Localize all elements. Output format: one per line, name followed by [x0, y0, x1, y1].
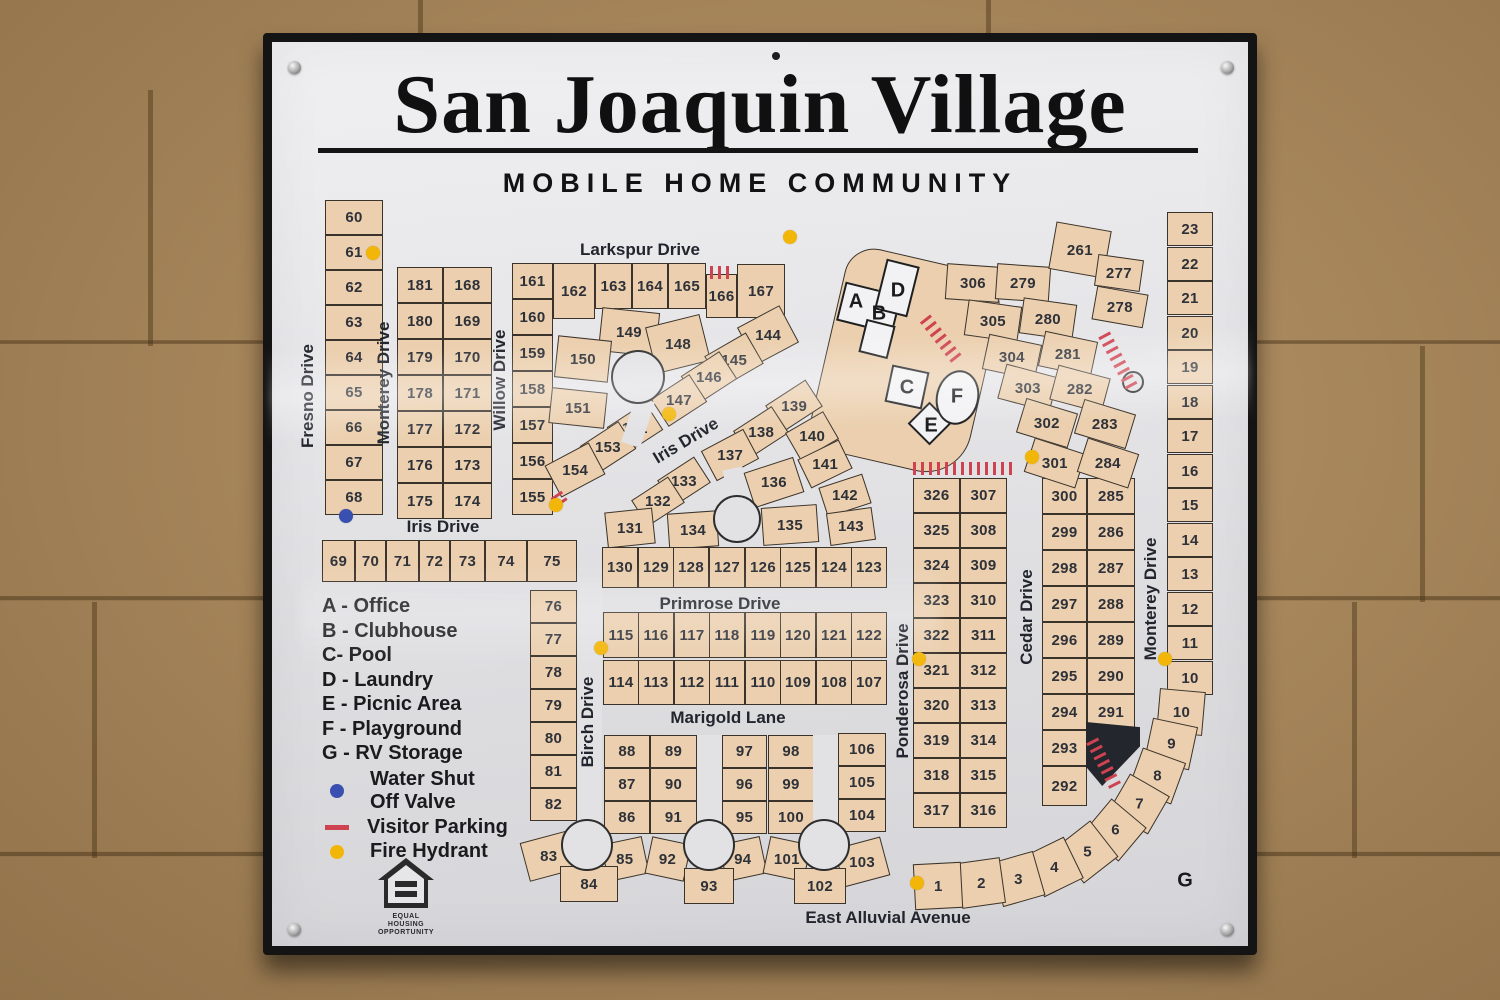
lot-278: 278 [1091, 286, 1148, 329]
lot-115: 115 [603, 612, 639, 658]
lot-155: 155 [512, 479, 553, 515]
lot-296: 296 [1042, 622, 1087, 658]
lot-306: 306 [945, 263, 1001, 303]
lot-number: 284 [1095, 455, 1121, 472]
lot-number: 110 [750, 674, 775, 691]
lot-number: 286 [1098, 524, 1124, 541]
equal-housing-icon [378, 858, 434, 908]
visitor-parking-icon [325, 825, 349, 830]
lot-number: 86 [618, 809, 635, 826]
lot-number: 326 [924, 487, 950, 504]
lot-108: 108 [816, 660, 852, 705]
lot-number: 287 [1098, 560, 1124, 577]
legend-entry-g: G - RV Storage [322, 741, 572, 766]
lot-number: 131 [617, 520, 643, 537]
lot-130: 130 [602, 547, 638, 588]
lot-number: 156 [520, 453, 546, 470]
lot-129: 129 [638, 547, 674, 588]
lot-323: 323 [913, 583, 960, 618]
legend-entry-e: E - Picnic Area [322, 692, 572, 717]
lot-number: 119 [750, 627, 775, 644]
lot-311: 311 [960, 618, 1007, 653]
legend-entry-d: D - Laundry [322, 668, 572, 693]
lot-number: 13 [1181, 566, 1198, 583]
lot-number: 136 [761, 474, 787, 491]
lot-number: 158 [520, 381, 546, 398]
lot-number: 150 [570, 351, 596, 368]
lot-84: 84 [560, 866, 618, 902]
lot-number: 1 [934, 878, 943, 895]
lot-number: 67 [345, 454, 362, 471]
lot-number: 157 [520, 417, 546, 434]
lot-287: 287 [1087, 550, 1135, 586]
lot-number: 316 [971, 802, 997, 819]
lot-164: 164 [632, 263, 668, 309]
lot-number: 91 [665, 809, 682, 826]
lot-number: 180 [407, 313, 433, 330]
lot-317: 317 [913, 793, 960, 828]
visitor-parking-tick [1101, 766, 1114, 775]
lot-number: 315 [971, 767, 997, 784]
lot-172: 172 [443, 411, 492, 447]
visitor-parking-tick [1110, 353, 1123, 362]
site-map: 6061626364656667681811801791781771761751… [0, 0, 1500, 1000]
lot-171: 171 [443, 375, 492, 411]
lot-123: 123 [851, 547, 887, 588]
lot-number: 319 [924, 732, 950, 749]
lot-number: 311 [971, 627, 996, 644]
lot-number: 299 [1052, 524, 1078, 541]
lot-number: 322 [924, 627, 950, 644]
lot-number: 15 [1181, 497, 1198, 514]
wall-background: San Joaquin Village MOBILE HOME COMMUNIT… [0, 0, 1500, 1000]
lot-15: 15 [1167, 488, 1213, 522]
street-label-birch-drive: Birch Drive [578, 677, 598, 768]
lot-11: 11 [1167, 626, 1213, 660]
lot-number: 170 [455, 349, 481, 366]
street-label-iris-drive: Iris Drive [407, 517, 480, 537]
visitor-parking-tick [945, 462, 948, 475]
lot-number: 61 [345, 244, 362, 261]
lot-318: 318 [913, 758, 960, 793]
cul-de-sac [798, 819, 850, 871]
lot-number: 87 [618, 776, 635, 793]
lot-107: 107 [851, 660, 887, 705]
lot-90: 90 [650, 768, 697, 801]
visitor-parking-tick [953, 462, 956, 475]
lot-number: 137 [717, 447, 743, 464]
lot-number: 105 [849, 774, 875, 791]
lot-number: 107 [856, 674, 882, 691]
lot-16: 16 [1167, 454, 1213, 488]
lot-number: 279 [1010, 275, 1036, 292]
visitor-parking-tick [1009, 462, 1012, 475]
lot-143: 143 [826, 507, 876, 546]
visitor-parking-tick [1102, 339, 1115, 348]
lot-number: 310 [971, 592, 997, 609]
lot-number: 151 [565, 400, 591, 417]
lot-number: 116 [643, 627, 668, 644]
lot-294: 294 [1042, 694, 1087, 730]
lot-number: 101 [774, 851, 800, 868]
lot-68: 68 [325, 480, 383, 515]
lot-165: 165 [668, 263, 706, 309]
lot-117: 117 [674, 612, 710, 658]
fire-hydrant-dot [910, 876, 924, 890]
lot-number: 318 [924, 767, 950, 784]
lot-62: 62 [325, 270, 383, 305]
fire-hydrant-dot [1158, 652, 1172, 666]
lot-87: 87 [604, 768, 650, 801]
lot-314: 314 [960, 723, 1007, 758]
lot-88: 88 [604, 735, 650, 768]
legend-entry-b: B - Clubhouse [322, 619, 572, 644]
lot-170: 170 [443, 339, 492, 375]
street-label-larkspur-drive: Larkspur Drive [580, 240, 700, 260]
lot-135: 135 [761, 504, 820, 546]
lot-98: 98 [768, 735, 814, 768]
lot-number: 112 [679, 674, 704, 691]
lot-178: 178 [397, 375, 443, 411]
lot-112: 112 [674, 660, 710, 705]
lot-176: 176 [397, 447, 443, 483]
lot-315: 315 [960, 758, 1007, 793]
lot-114: 114 [603, 660, 639, 705]
lot-295: 295 [1042, 658, 1087, 694]
lot-116: 116 [638, 612, 674, 658]
lot-number: 2 [977, 875, 986, 892]
fire-hydrant-dot [662, 407, 676, 421]
lot-number: 282 [1067, 381, 1093, 398]
lot-309: 309 [960, 548, 1007, 583]
visitor-parking-tick [921, 462, 924, 475]
lot-175: 175 [397, 483, 443, 519]
lot-111: 111 [709, 660, 745, 705]
lot-162: 162 [553, 263, 595, 319]
legend-entry-f: F - Playground [322, 717, 572, 742]
lot-number: 102 [807, 878, 833, 895]
lot-number: 143 [838, 518, 864, 535]
lot-number: 280 [1035, 311, 1061, 328]
facility-label-g: G [1177, 870, 1193, 893]
lot-number: 293 [1052, 740, 1078, 757]
lot-number: 12 [1181, 601, 1198, 618]
lot-106: 106 [838, 733, 886, 766]
lot-177: 177 [397, 411, 443, 447]
lot-number: 181 [407, 277, 433, 294]
fire-hydrant-dot [594, 641, 608, 655]
lot-number: 4 [1050, 859, 1059, 876]
lot-122: 122 [851, 612, 887, 658]
lot-number: 323 [924, 592, 950, 609]
lot-156: 156 [512, 443, 553, 479]
lot-number: 169 [455, 313, 481, 330]
water-valve-icon [330, 784, 344, 798]
lot-319: 319 [913, 723, 960, 758]
lot-72: 72 [419, 540, 450, 582]
lot-number: 174 [455, 493, 481, 510]
lot-number: 20 [1181, 325, 1198, 342]
lot-292: 292 [1042, 766, 1087, 806]
lot-number: 135 [777, 517, 803, 534]
lot-number: 141 [812, 456, 838, 473]
lot-number: 98 [782, 743, 799, 760]
lot-number: 179 [407, 349, 433, 366]
lot-166: 166 [706, 274, 737, 318]
lot-number: 159 [520, 345, 546, 362]
lot-131: 131 [604, 508, 656, 549]
lot-number: 99 [782, 776, 799, 793]
lot-168: 168 [443, 267, 492, 303]
facility-label-c: C [900, 377, 914, 400]
lot-number: 128 [678, 559, 704, 576]
street-label-monterey-drive: Monterey Drive [374, 322, 394, 445]
lot-12: 12 [1167, 592, 1213, 626]
lot-286: 286 [1087, 514, 1135, 550]
lot-number: 85 [616, 851, 633, 868]
visitor-parking-tick [969, 462, 972, 475]
visitor-parking-tick [929, 462, 932, 475]
lot-307: 307 [960, 478, 1007, 513]
lot-60: 60 [325, 200, 383, 235]
lot-number: 296 [1052, 632, 1078, 649]
lot-number: 301 [1042, 455, 1068, 472]
legend-entry-c: C- Pool [322, 643, 572, 668]
visitor-parking-tick [1093, 752, 1106, 761]
map-legend: A - OfficeB - ClubhouseC- PoolD - Laundr… [322, 594, 572, 766]
lot-number: 303 [1015, 380, 1041, 397]
lot-173: 173 [443, 447, 492, 483]
lot-number: 60 [345, 209, 362, 226]
lot-number: 81 [545, 763, 562, 780]
lot-69: 69 [322, 540, 355, 582]
lot-number: 283 [1092, 416, 1118, 433]
lot-number: 10 [1172, 704, 1189, 721]
lot-325: 325 [913, 513, 960, 548]
visitor-parking-tick [1117, 367, 1130, 376]
lot-313: 313 [960, 688, 1007, 723]
lot-number: 10 [1181, 670, 1198, 687]
lot-number: 66 [345, 419, 362, 436]
lot-number: 306 [960, 275, 986, 292]
lot-number: 96 [736, 776, 753, 793]
lot-19: 19 [1167, 350, 1213, 384]
lot-326: 326 [913, 478, 960, 513]
lot-number: 313 [971, 697, 997, 714]
lot-number: 22 [1181, 256, 1198, 273]
lot-number: 155 [520, 489, 546, 506]
lot-number: 123 [856, 559, 882, 576]
visitor-parking-tick [1098, 331, 1111, 340]
lot-number: 317 [924, 802, 950, 819]
visitor-parking-tick [985, 462, 988, 475]
lot-number: 18 [1181, 394, 1198, 411]
lot-number: 307 [971, 487, 997, 504]
lot-number: 139 [781, 398, 807, 415]
lot-number: 84 [580, 876, 597, 893]
street-label-cedar-drive: Cedar Drive [1017, 569, 1037, 664]
lot-150: 150 [554, 335, 612, 382]
lot-number: 138 [748, 424, 774, 441]
lot-180: 180 [397, 303, 443, 339]
legend-entry-label: Water ShutOff Valve [370, 768, 475, 814]
lot-179: 179 [397, 339, 443, 375]
lot-number: 149 [616, 324, 642, 341]
lot-number: 21 [1181, 290, 1198, 307]
lot-number: 308 [971, 522, 997, 539]
lot-125: 125 [780, 547, 816, 588]
lot-110: 110 [745, 660, 781, 705]
lot-22: 22 [1167, 247, 1213, 281]
legend-entry-visitor-parking: Visitor Parking [322, 816, 508, 839]
visitor-parking-tick [1104, 773, 1117, 782]
lot-102: 102 [794, 868, 846, 904]
lot-70: 70 [355, 540, 386, 582]
lot-number: 23 [1181, 221, 1198, 238]
street-label-east-alluvial-avenue: East Alluvial Avenue [805, 908, 970, 928]
lot-181: 181 [397, 267, 443, 303]
lot-23: 23 [1167, 212, 1213, 246]
lot-number: 74 [497, 553, 514, 570]
lot-number: 168 [455, 277, 481, 294]
lot-number: 89 [665, 743, 682, 760]
lot-293: 293 [1042, 730, 1087, 766]
visitor-parking-marks [913, 462, 1012, 475]
legend-entry-water-valve: Water ShutOff Valve [322, 768, 475, 814]
visitor-parking-tick [718, 266, 721, 279]
lot-number: 176 [407, 457, 433, 474]
fire-hydrant-dot [783, 230, 797, 244]
lot-number: 97 [736, 743, 753, 760]
street-label-monterey-drive: Monterey Drive [1141, 538, 1161, 661]
lot-number: 312 [971, 662, 997, 679]
lot-number: 104 [849, 807, 875, 824]
lot-number: 7 [1135, 796, 1144, 813]
lot-number: 5 [1083, 844, 1092, 861]
lot-number: 161 [520, 273, 546, 290]
lot-number: 144 [755, 327, 781, 344]
lot-number: 298 [1052, 560, 1078, 577]
lot-118: 118 [709, 612, 745, 658]
visitor-parking-tick [1106, 346, 1119, 355]
lot-number: 100 [778, 809, 804, 826]
lot-number: 297 [1052, 596, 1078, 613]
lot-13: 13 [1167, 557, 1213, 591]
visitor-parking-tick [1097, 759, 1110, 768]
lot-299: 299 [1042, 514, 1087, 550]
lot-number: 71 [394, 553, 411, 570]
visitor-parking-tick [710, 266, 713, 279]
lot-number: 118 [714, 627, 739, 644]
lot-number: 122 [856, 627, 882, 644]
lot-number: 63 [345, 314, 362, 331]
lot-2: 2 [956, 857, 1006, 909]
lot-number: 142 [832, 487, 858, 504]
legend-entry-fire-hydrant: Fire Hydrant [322, 840, 488, 863]
lot-174: 174 [443, 483, 492, 519]
street-label-willow-drive: Willow Drive [490, 330, 510, 431]
lot-20: 20 [1167, 316, 1213, 350]
lot-322: 322 [913, 618, 960, 653]
lot-number: 288 [1098, 596, 1124, 613]
lot-number: 88 [618, 743, 635, 760]
water-valve-dot [339, 509, 353, 523]
cul-de-sac [683, 819, 735, 871]
lot-14: 14 [1167, 523, 1213, 557]
lot-75: 75 [527, 540, 577, 582]
lot-number: 320 [924, 697, 950, 714]
visitor-parking-marks [710, 266, 729, 279]
road-stem [813, 735, 838, 823]
lot-number: 111 [715, 674, 739, 691]
lot-number: 134 [680, 522, 706, 539]
lot-number: 175 [407, 493, 433, 510]
visitor-parking-tick [1113, 360, 1126, 369]
facility-label-d: D [891, 280, 905, 303]
lot-18: 18 [1167, 385, 1213, 419]
lot-298: 298 [1042, 550, 1087, 586]
visitor-parking-tick [726, 266, 729, 279]
lot-289: 289 [1087, 622, 1135, 658]
lot-number: 9 [1167, 736, 1176, 753]
lot-number: 300 [1052, 488, 1078, 505]
lot-number: 129 [643, 559, 669, 576]
lot-number: 325 [924, 522, 950, 539]
legend-entry-a: A - Office [322, 594, 572, 619]
visitor-parking-tick [993, 462, 996, 475]
lot-74: 74 [485, 540, 527, 582]
lot-320: 320 [913, 688, 960, 723]
lot-127: 127 [709, 547, 745, 588]
visitor-parking-tick [913, 462, 916, 475]
street-label-fresno-drive: Fresno Drive [298, 344, 318, 448]
lot-number: 305 [980, 313, 1006, 330]
visitor-parking-tick [1108, 780, 1121, 789]
lot-number: 290 [1098, 668, 1124, 685]
street-label-marigold-lane: Marigold Lane [670, 708, 785, 728]
lot-number: 90 [665, 776, 682, 793]
lot-109: 109 [780, 660, 816, 705]
lot-number: 14 [1181, 532, 1198, 549]
lot-312: 312 [960, 653, 1007, 688]
lot-134: 134 [667, 510, 719, 549]
street-label-primrose-drive: Primrose Drive [660, 594, 781, 614]
lot-number: 171 [455, 385, 481, 402]
lot-169: 169 [443, 303, 492, 339]
lot-number: 93 [700, 878, 717, 895]
lot-number: 309 [971, 557, 997, 574]
lot-number: 115 [608, 627, 633, 644]
lot-number: 114 [608, 674, 633, 691]
facility-label-f: F [951, 386, 963, 409]
lot-number: 291 [1098, 704, 1124, 721]
lot-17: 17 [1167, 419, 1213, 453]
lot-number: 95 [736, 809, 753, 826]
visitor-parking-tick [1001, 462, 1004, 475]
legend-facilities: A - OfficeB - ClubhouseC- PoolD - Laundr… [322, 594, 572, 766]
lot-number: 178 [407, 385, 433, 402]
facility-label-a: A [849, 291, 863, 314]
lot-number: 154 [562, 462, 588, 479]
lot-number: 278 [1107, 299, 1133, 316]
lot-number: 62 [345, 279, 362, 296]
lot-number: 177 [407, 421, 433, 438]
lot-number: 19 [1181, 359, 1198, 376]
fire-hydrant-dot [912, 652, 926, 666]
visitor-parking-tick [937, 462, 940, 475]
lot-283: 283 [1074, 399, 1136, 449]
lot-number: 277 [1106, 265, 1132, 282]
